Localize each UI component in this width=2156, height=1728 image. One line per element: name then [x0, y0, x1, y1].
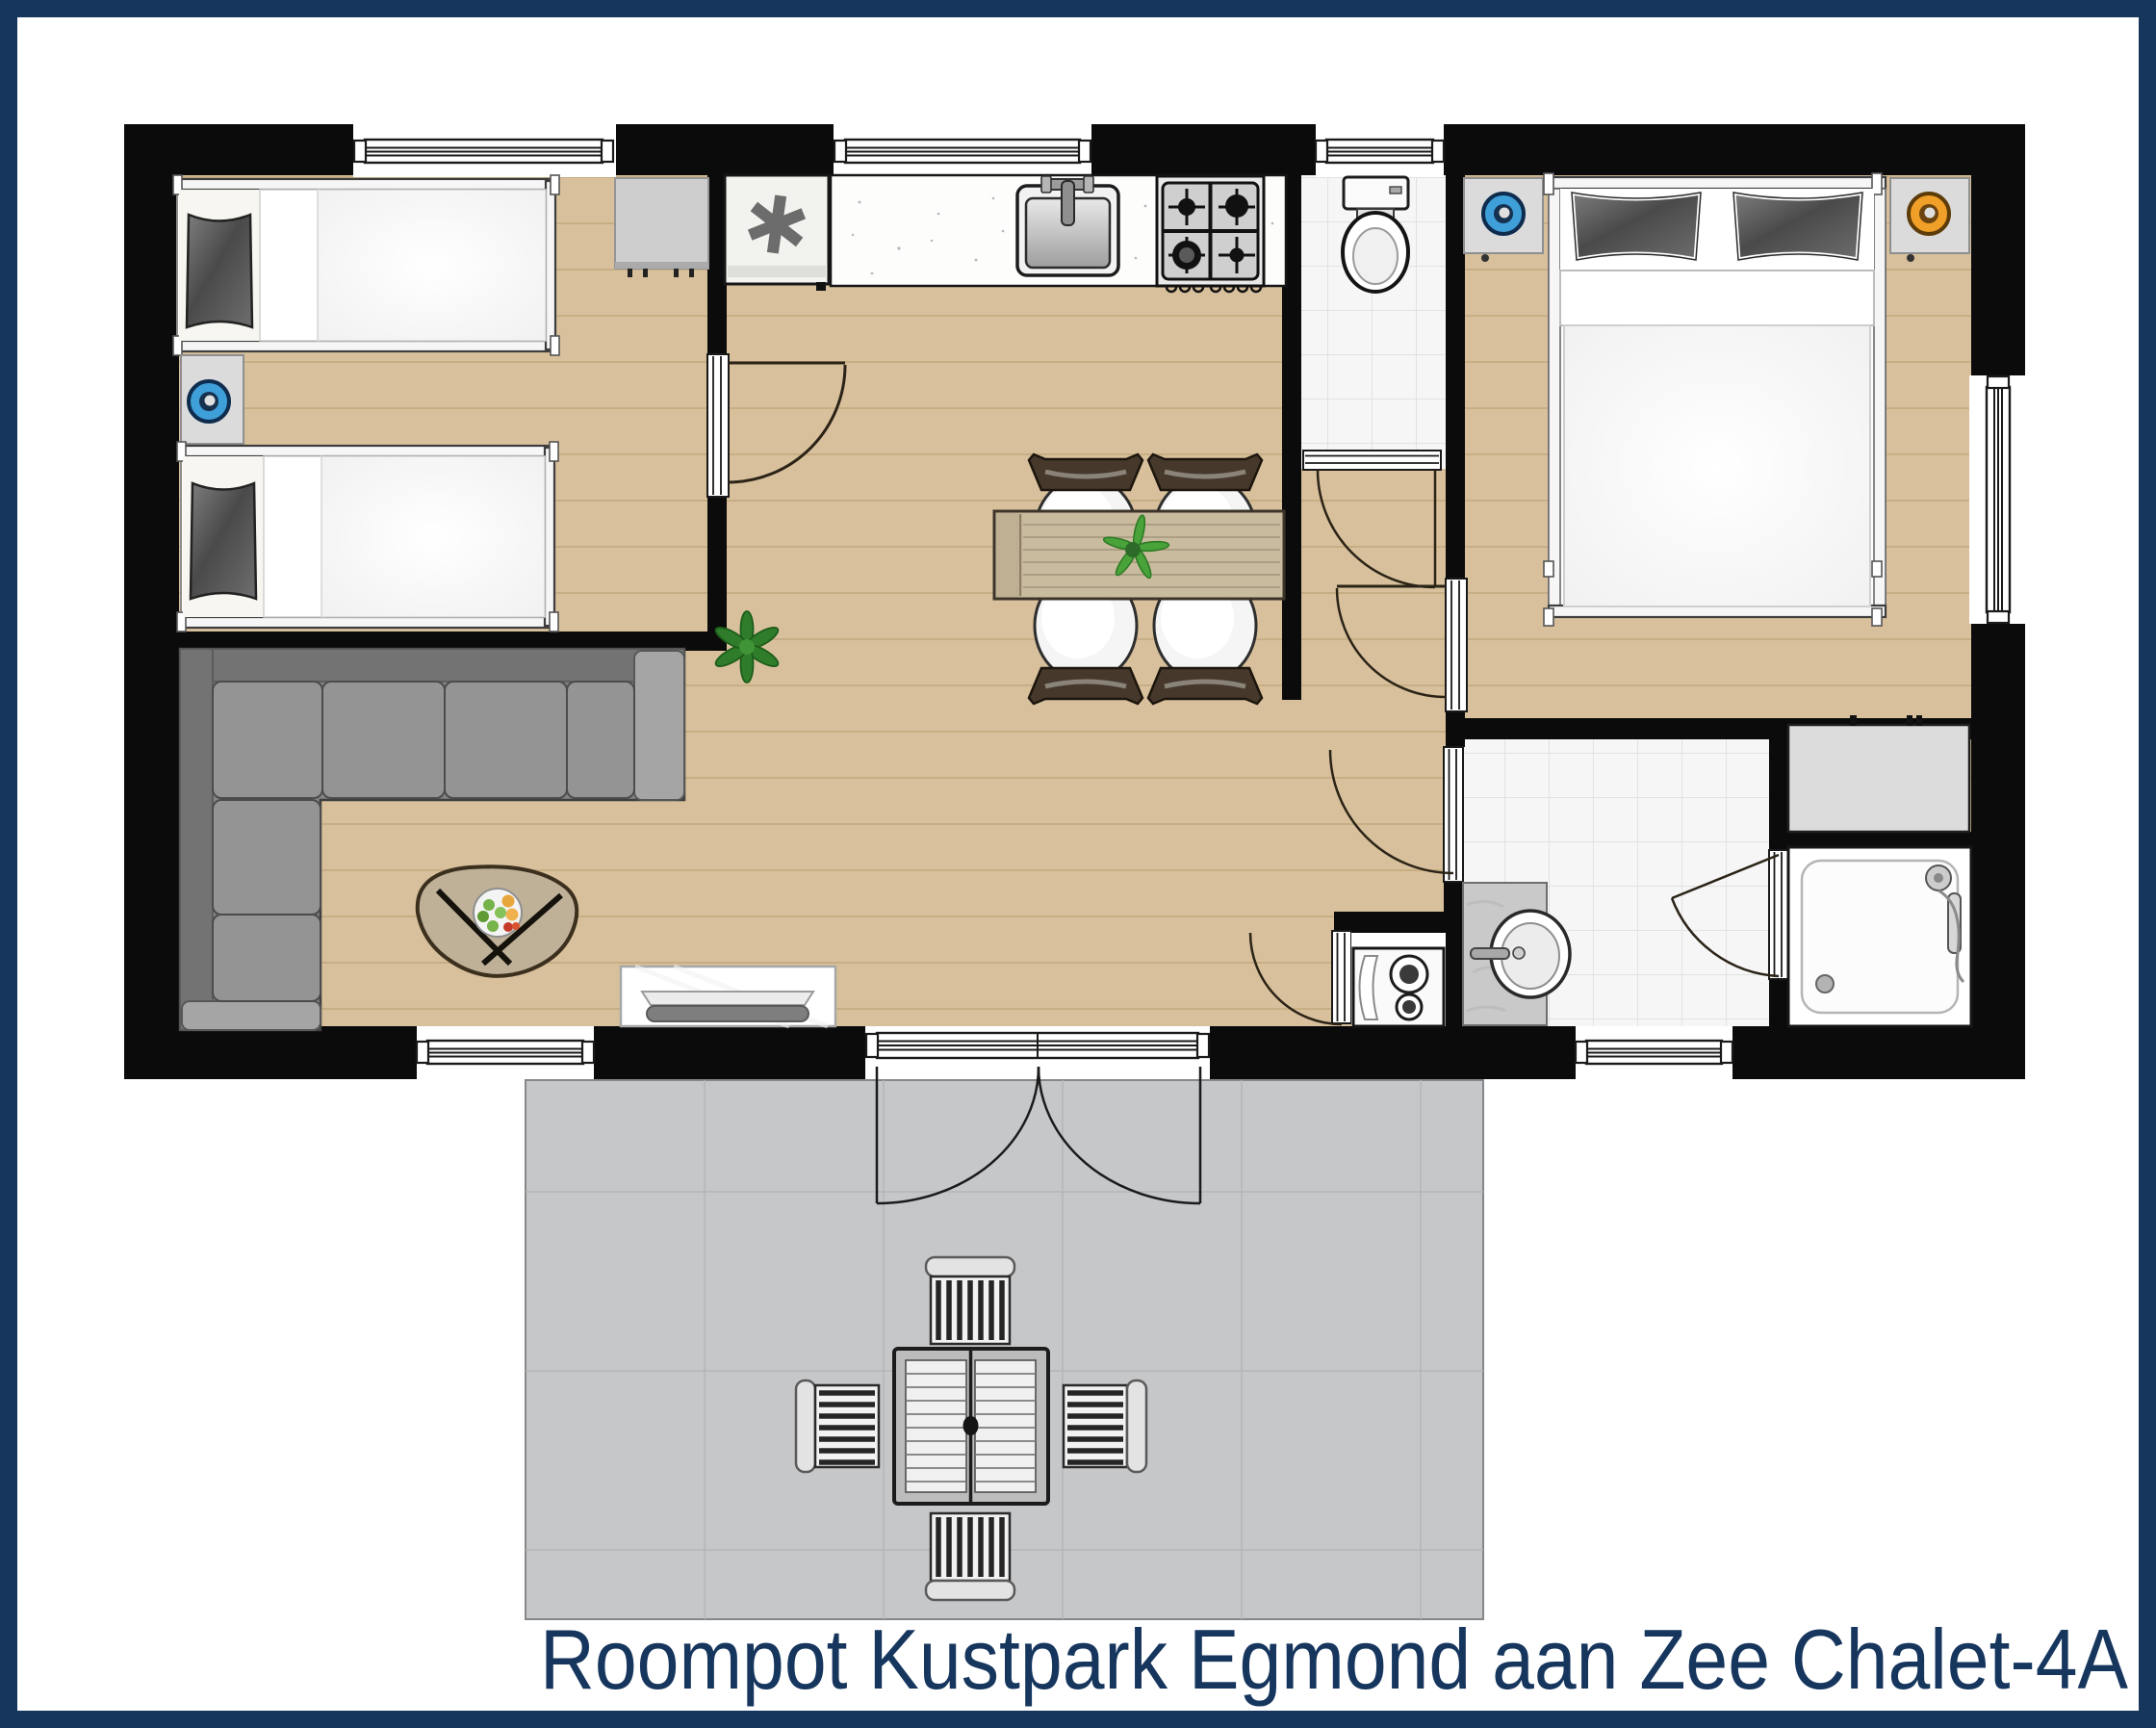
- svg-text:Roompot Kustpark Egmond aan Ze: Roompot Kustpark Egmond aan Zee Chalet-4…: [540, 1612, 2128, 1707]
